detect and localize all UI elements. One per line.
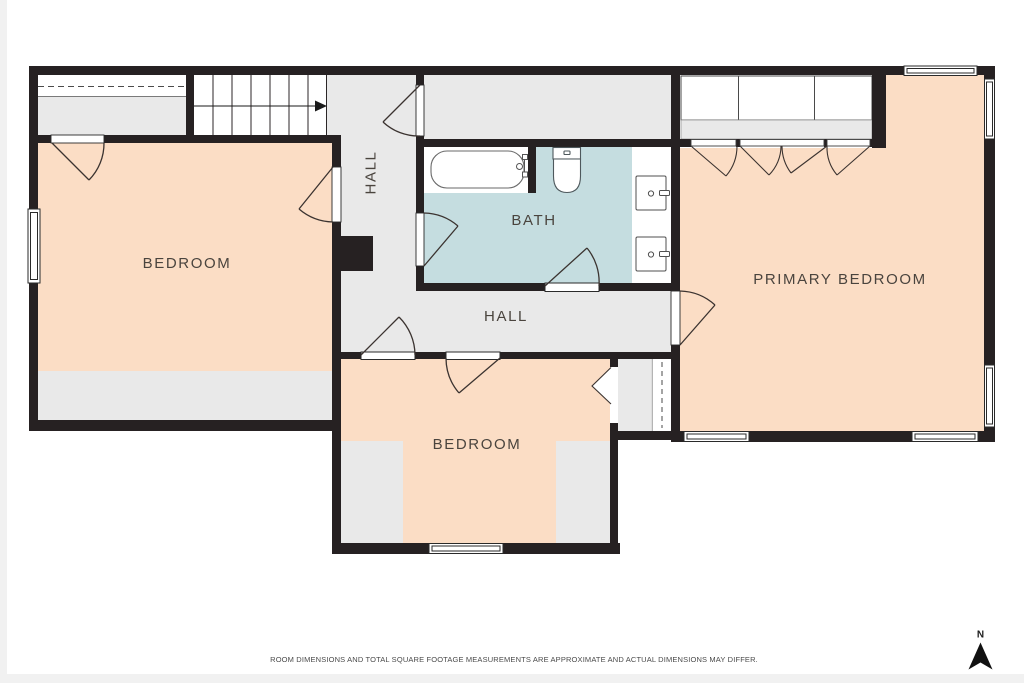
svg-text:HALL: HALL	[363, 151, 380, 195]
svg-text:BEDROOM: BEDROOM	[143, 255, 232, 272]
svg-text:BEDROOM: BEDROOM	[433, 436, 522, 453]
svg-text:PRIMARY BEDROOM: PRIMARY BEDROOM	[753, 271, 926, 288]
svg-text:BATH: BATH	[511, 212, 556, 229]
svg-text:N: N	[977, 630, 984, 641]
svg-text:HALL: HALL	[484, 308, 528, 325]
svg-text:ROOM DIMENSIONS AND TOTAL SQUA: ROOM DIMENSIONS AND TOTAL SQUARE FOOTAGE…	[270, 655, 758, 664]
